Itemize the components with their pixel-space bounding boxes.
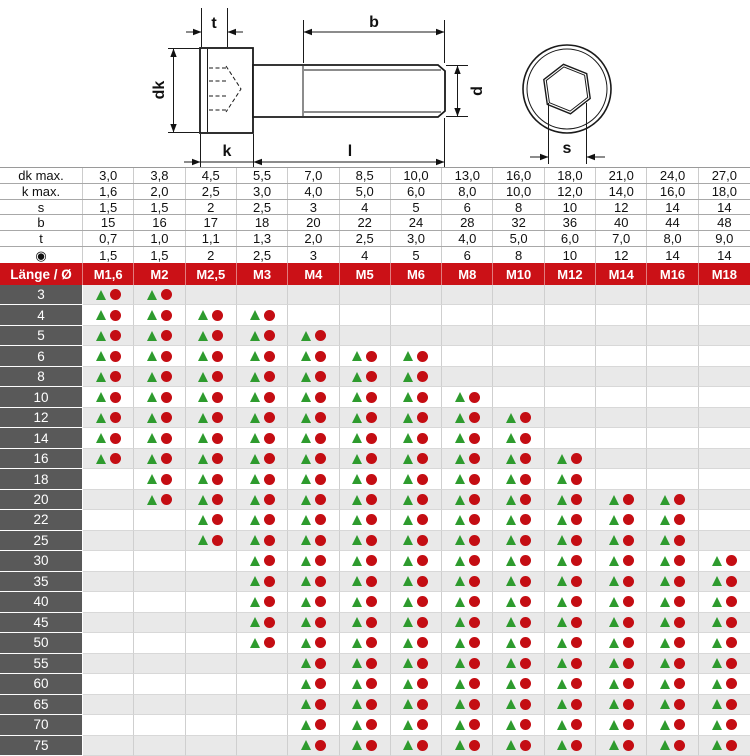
triangle-icon xyxy=(301,617,311,627)
availability-cell xyxy=(186,715,237,735)
circle-icon xyxy=(315,699,326,710)
dimension-value: 48 xyxy=(699,215,750,230)
circle-icon xyxy=(315,412,326,423)
circle-icon xyxy=(161,494,172,505)
triangle-icon xyxy=(506,617,516,627)
triangle-icon xyxy=(455,515,465,525)
triangle-icon xyxy=(250,310,260,320)
availability-cell xyxy=(134,387,185,407)
availability-cell xyxy=(237,428,288,448)
availability-cell xyxy=(699,736,750,756)
matrix-row: 55 xyxy=(0,654,750,674)
circle-icon xyxy=(212,535,223,546)
availability-cell xyxy=(340,633,391,653)
triangle-icon xyxy=(506,535,516,545)
availability-cell xyxy=(391,326,442,346)
availability-cell xyxy=(596,654,647,674)
circle-icon xyxy=(417,514,428,525)
triangle-icon xyxy=(352,392,362,402)
circle-icon xyxy=(212,371,223,382)
availability-cell xyxy=(288,469,339,489)
circle-icon xyxy=(161,310,172,321)
availability-cell xyxy=(340,715,391,735)
availability-cell xyxy=(442,531,493,551)
dimension-row: ◉1,51,522,53456810121414 xyxy=(0,247,750,263)
availability-cell xyxy=(83,346,134,366)
triangle-icon xyxy=(301,454,311,464)
triangle-icon xyxy=(660,679,670,689)
matrix-column-header: M10 xyxy=(493,263,544,285)
circle-icon xyxy=(571,494,582,505)
triangle-icon xyxy=(506,699,516,709)
circle-icon xyxy=(212,514,223,525)
triangle-icon xyxy=(403,515,413,525)
availability-cell xyxy=(288,695,339,715)
matrix-row-label: 22 xyxy=(0,510,83,530)
availability-cell xyxy=(186,551,237,571)
dimension-value: 3,8 xyxy=(134,168,185,183)
availability-cell xyxy=(596,633,647,653)
circle-icon xyxy=(726,719,737,730)
circle-icon xyxy=(571,740,582,751)
availability-cell xyxy=(237,633,288,653)
availability-cell xyxy=(391,674,442,694)
circle-icon xyxy=(469,412,480,423)
triangle-icon xyxy=(660,720,670,730)
circle-icon xyxy=(623,596,634,607)
triangle-icon xyxy=(660,617,670,627)
triangle-icon xyxy=(96,290,106,300)
availability-cell xyxy=(699,695,750,715)
availability-cell xyxy=(340,367,391,387)
triangle-icon xyxy=(506,556,516,566)
dimension-value: 4,5 xyxy=(186,168,237,183)
triangle-icon xyxy=(455,454,465,464)
dimension-row: k max.1,62,02,53,04,05,06,08,010,012,014… xyxy=(0,184,750,200)
dimension-value: 0,7 xyxy=(83,231,134,246)
availability-cell xyxy=(493,654,544,674)
availability-cell xyxy=(493,305,544,325)
circle-icon xyxy=(212,433,223,444)
availability-cell xyxy=(134,285,185,305)
dim-label-k: k xyxy=(223,143,232,160)
triangle-icon xyxy=(96,413,106,423)
availability-cell xyxy=(493,633,544,653)
triangle-icon xyxy=(198,535,208,545)
circle-icon xyxy=(264,392,275,403)
circle-icon xyxy=(366,637,377,648)
triangle-icon xyxy=(455,720,465,730)
dimension-value: 14 xyxy=(699,247,750,263)
availability-cell xyxy=(83,736,134,756)
circle-icon xyxy=(264,596,275,607)
availability-cell xyxy=(545,613,596,633)
availability-cell xyxy=(647,695,698,715)
matrix-column-header: M2 xyxy=(134,263,185,285)
triangle-icon xyxy=(557,617,567,627)
availability-cell xyxy=(699,551,750,571)
triangle-icon xyxy=(557,515,567,525)
triangle-icon xyxy=(609,556,619,566)
circle-icon xyxy=(623,494,634,505)
triangle-icon xyxy=(557,474,567,484)
availability-cell xyxy=(340,387,391,407)
dimension-value: 10,0 xyxy=(493,184,544,199)
dimension-value: 6 xyxy=(442,200,493,215)
triangle-icon xyxy=(455,556,465,566)
dimension-value: 1,1 xyxy=(186,231,237,246)
dimension-row-label: dk max. xyxy=(0,168,83,183)
circle-icon xyxy=(417,740,428,751)
availability-cell xyxy=(134,490,185,510)
circle-icon xyxy=(571,474,582,485)
triangle-icon xyxy=(352,597,362,607)
dimension-value: 8,0 xyxy=(442,184,493,199)
triangle-icon xyxy=(455,658,465,668)
dimension-value: 32 xyxy=(493,215,544,230)
matrix-row: 25 xyxy=(0,531,750,551)
availability-cell xyxy=(83,387,134,407)
availability-cell xyxy=(391,346,442,366)
triangle-icon xyxy=(250,556,260,566)
dimension-value: 2,5 xyxy=(186,184,237,199)
availability-cell xyxy=(186,592,237,612)
availability-cell xyxy=(493,469,544,489)
dimension-value: 8,0 xyxy=(647,231,698,246)
availability-cell xyxy=(596,449,647,469)
matrix-row-label: 60 xyxy=(0,674,83,694)
availability-cell xyxy=(647,408,698,428)
availability-cell xyxy=(237,572,288,592)
dimension-row: s1,51,522,53456810121414 xyxy=(0,200,750,216)
triangle-icon xyxy=(198,351,208,361)
availability-cell xyxy=(340,736,391,756)
availability-cell xyxy=(391,449,442,469)
circle-icon xyxy=(366,617,377,628)
dimension-value: 3,0 xyxy=(83,168,134,183)
triangle-icon xyxy=(455,699,465,709)
availability-cell xyxy=(288,490,339,510)
availability-cell xyxy=(647,428,698,448)
triangle-icon xyxy=(609,597,619,607)
matrix-row-label: 75 xyxy=(0,736,83,756)
triangle-icon xyxy=(609,720,619,730)
triangle-icon xyxy=(660,495,670,505)
circle-icon xyxy=(571,637,582,648)
circle-icon xyxy=(315,637,326,648)
availability-cell xyxy=(596,326,647,346)
availability-cell xyxy=(596,490,647,510)
availability-cell xyxy=(391,695,442,715)
dimension-value: 20 xyxy=(288,215,339,230)
availability-cell xyxy=(596,715,647,735)
triangle-icon xyxy=(455,638,465,648)
triangle-icon xyxy=(198,392,208,402)
availability-cell xyxy=(391,408,442,428)
availability-cell xyxy=(288,572,339,592)
dimension-value: 2 xyxy=(186,200,237,215)
availability-cell xyxy=(288,305,339,325)
availability-cell xyxy=(186,633,237,653)
triangle-icon xyxy=(506,495,516,505)
triangle-icon xyxy=(96,392,106,402)
availability-cell xyxy=(545,490,596,510)
circle-icon xyxy=(417,719,428,730)
availability-cell xyxy=(493,715,544,735)
triangle-icon xyxy=(609,679,619,689)
availability-cell xyxy=(442,613,493,633)
availability-cell xyxy=(545,510,596,530)
availability-cell xyxy=(391,285,442,305)
availability-cell xyxy=(442,695,493,715)
availability-cell xyxy=(134,510,185,530)
dimension-value: 3 xyxy=(288,200,339,215)
availability-cell xyxy=(699,490,750,510)
circle-icon xyxy=(264,412,275,423)
availability-cell xyxy=(134,613,185,633)
circle-icon xyxy=(623,678,634,689)
triangle-icon xyxy=(301,331,311,341)
dimension-value: 1,5 xyxy=(83,200,134,215)
triangle-icon xyxy=(250,617,260,627)
triangle-icon xyxy=(250,372,260,382)
availability-cell xyxy=(442,510,493,530)
matrix-row: 5 xyxy=(0,326,750,346)
circle-icon xyxy=(264,474,275,485)
triangle-icon xyxy=(147,310,157,320)
availability-cell xyxy=(647,551,698,571)
triangle-icon xyxy=(557,495,567,505)
availability-cell xyxy=(545,367,596,387)
availability-cell xyxy=(442,428,493,448)
dimension-row: dk max.3,03,84,55,57,08,510,013,016,018,… xyxy=(0,168,750,184)
triangle-icon xyxy=(506,576,516,586)
circle-icon xyxy=(417,535,428,546)
triangle-icon xyxy=(506,679,516,689)
matrix-row-label: 4 xyxy=(0,305,83,325)
triangle-icon xyxy=(660,597,670,607)
dimension-value: 16 xyxy=(134,215,185,230)
dimension-value: 18,0 xyxy=(545,168,596,183)
availability-cell xyxy=(288,531,339,551)
dimension-value: 36 xyxy=(545,215,596,230)
triangle-icon xyxy=(250,474,260,484)
triangle-icon xyxy=(506,433,516,443)
matrix-column-header: M6 xyxy=(391,263,442,285)
triangle-icon xyxy=(609,576,619,586)
triangle-icon xyxy=(403,535,413,545)
circle-icon xyxy=(571,719,582,730)
dimension-value: 3,0 xyxy=(391,231,442,246)
matrix-row: 20 xyxy=(0,490,750,510)
availability-cell xyxy=(237,408,288,428)
triangle-icon xyxy=(660,699,670,709)
availability-cell xyxy=(699,633,750,653)
matrix-row-label: 55 xyxy=(0,654,83,674)
circle-icon xyxy=(520,637,531,648)
availability-cell xyxy=(647,326,698,346)
triangle-icon xyxy=(147,495,157,505)
triangle-icon xyxy=(250,331,260,341)
availability-cell xyxy=(545,736,596,756)
circle-icon xyxy=(674,535,685,546)
triangle-icon xyxy=(609,740,619,750)
circle-icon xyxy=(469,433,480,444)
dim-label-s: s xyxy=(563,140,572,157)
dimension-value: 10,0 xyxy=(391,168,442,183)
triangle-icon xyxy=(506,515,516,525)
availability-cell xyxy=(237,367,288,387)
triangle-icon xyxy=(352,658,362,668)
triangle-icon xyxy=(147,454,157,464)
dimension-value: 10 xyxy=(545,247,596,263)
dim-label-d: d xyxy=(469,86,486,96)
circle-icon xyxy=(366,596,377,607)
availability-cell xyxy=(83,572,134,592)
triangle-icon xyxy=(506,597,516,607)
availability-cell xyxy=(83,695,134,715)
availability-cell xyxy=(340,305,391,325)
availability-cell xyxy=(134,572,185,592)
triangle-icon xyxy=(301,535,311,545)
dimension-value: 2,0 xyxy=(288,231,339,246)
availability-cell xyxy=(442,285,493,305)
circle-icon xyxy=(520,699,531,710)
triangle-icon xyxy=(352,576,362,586)
matrix-row: 16 xyxy=(0,449,750,469)
dimension-value: 5,5 xyxy=(237,168,288,183)
triangle-icon xyxy=(506,720,516,730)
screw-datasheet-page: t b dk d k l s dk max.3,03,84,55,57,08,5… xyxy=(0,0,750,756)
dimension-d xyxy=(446,65,468,117)
triangle-icon xyxy=(712,597,722,607)
availability-cell xyxy=(186,428,237,448)
dimension-value: 21,0 xyxy=(596,168,647,183)
matrix-row: 18 xyxy=(0,469,750,489)
circle-icon xyxy=(674,719,685,730)
availability-cell xyxy=(134,736,185,756)
triangle-icon xyxy=(712,720,722,730)
triangle-icon xyxy=(96,372,106,382)
circle-icon xyxy=(264,453,275,464)
triangle-icon xyxy=(250,515,260,525)
triangle-icon xyxy=(147,372,157,382)
matrix-row-label: 10 xyxy=(0,387,83,407)
matrix-row-label: 45 xyxy=(0,613,83,633)
dimension-value: 3,0 xyxy=(237,184,288,199)
availability-cell xyxy=(647,572,698,592)
triangle-icon xyxy=(403,495,413,505)
availability-cell xyxy=(699,572,750,592)
availability-cell xyxy=(340,490,391,510)
availability-cell xyxy=(545,695,596,715)
triangle-icon xyxy=(403,576,413,586)
circle-icon xyxy=(161,330,172,341)
dimension-value: 16,0 xyxy=(493,168,544,183)
triangle-icon xyxy=(198,495,208,505)
triangle-icon xyxy=(147,331,157,341)
availability-cell xyxy=(442,674,493,694)
triangle-icon xyxy=(352,720,362,730)
circle-icon xyxy=(469,555,480,566)
triangle-icon xyxy=(198,433,208,443)
triangle-icon xyxy=(403,372,413,382)
availability-cell xyxy=(340,572,391,592)
availability-cell xyxy=(596,551,647,571)
availability-cell xyxy=(545,469,596,489)
availability-cell xyxy=(647,367,698,387)
availability-cell xyxy=(83,592,134,612)
availability-cell xyxy=(493,592,544,612)
circle-icon xyxy=(674,576,685,587)
circle-icon xyxy=(366,351,377,362)
circle-icon xyxy=(520,719,531,730)
circle-icon xyxy=(520,740,531,751)
triangle-icon xyxy=(301,740,311,750)
matrix-row-label: 12 xyxy=(0,408,83,428)
availability-cell xyxy=(237,449,288,469)
matrix-row: 65 xyxy=(0,695,750,715)
triangle-icon xyxy=(198,515,208,525)
triangle-icon xyxy=(609,535,619,545)
triangle-icon xyxy=(198,454,208,464)
triangle-icon xyxy=(352,433,362,443)
availability-cell xyxy=(596,736,647,756)
availability-cell xyxy=(647,510,698,530)
triangle-icon xyxy=(352,679,362,689)
circle-icon xyxy=(366,576,377,587)
circle-icon xyxy=(571,678,582,689)
dimension-value: 4 xyxy=(340,200,391,215)
availability-cell xyxy=(186,572,237,592)
circle-icon xyxy=(520,514,531,525)
circle-icon xyxy=(623,514,634,525)
matrix-row: 4 xyxy=(0,305,750,325)
triangle-icon xyxy=(403,454,413,464)
availability-cell xyxy=(596,408,647,428)
dimension-value: 8,5 xyxy=(340,168,391,183)
availability-cell xyxy=(442,490,493,510)
circle-icon xyxy=(264,351,275,362)
circle-icon xyxy=(264,555,275,566)
availability-cell xyxy=(186,326,237,346)
circle-icon xyxy=(520,433,531,444)
availability-cell xyxy=(699,469,750,489)
circle-icon xyxy=(366,678,377,689)
circle-icon xyxy=(417,494,428,505)
availability-cell xyxy=(134,367,185,387)
circle-icon xyxy=(264,637,275,648)
circle-icon xyxy=(110,371,121,382)
availability-cell xyxy=(83,305,134,325)
triangle-icon xyxy=(403,617,413,627)
circle-icon xyxy=(366,555,377,566)
triangle-icon xyxy=(403,699,413,709)
availability-cell xyxy=(134,715,185,735)
circle-icon xyxy=(520,596,531,607)
matrix-column-header: M1,6 xyxy=(83,263,134,285)
triangle-icon xyxy=(352,372,362,382)
circle-icon xyxy=(110,433,121,444)
availability-cell xyxy=(288,326,339,346)
circle-icon xyxy=(315,617,326,628)
availability-cell xyxy=(493,572,544,592)
circle-icon xyxy=(520,453,531,464)
dimension-value: 1,5 xyxy=(134,247,185,263)
availability-cell xyxy=(647,736,698,756)
availability-cell xyxy=(83,326,134,346)
circle-icon xyxy=(264,535,275,546)
